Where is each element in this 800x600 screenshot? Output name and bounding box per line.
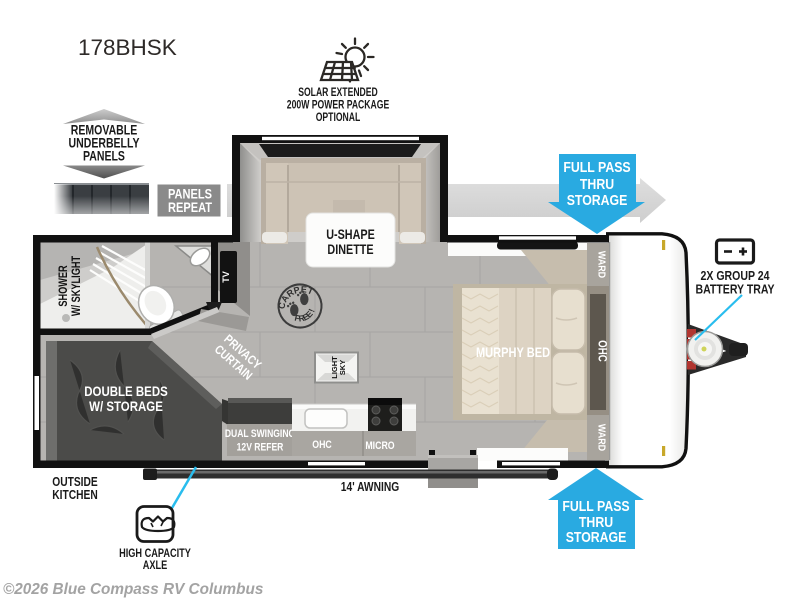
svg-text:OHC: OHC bbox=[595, 340, 608, 362]
svg-text:FULL PASS: FULL PASS bbox=[562, 498, 629, 514]
svg-text:THRU: THRU bbox=[580, 176, 614, 192]
svg-text:STORAGE: STORAGE bbox=[566, 529, 627, 545]
svg-text:REPEAT: REPEAT bbox=[168, 200, 212, 215]
svg-text:W/ STORAGE: W/ STORAGE bbox=[89, 398, 163, 414]
svg-text:OPTIONAL: OPTIONAL bbox=[316, 112, 361, 125]
svg-text:HIGH CAPACITY: HIGH CAPACITY bbox=[119, 548, 191, 560]
svg-text:SHOWER: SHOWER bbox=[58, 265, 70, 307]
svg-text:U-SHAPE: U-SHAPE bbox=[326, 227, 375, 242]
svg-text:W/ SKYLIGHT: W/ SKYLIGHT bbox=[71, 255, 83, 316]
svg-text:WARD: WARD bbox=[595, 424, 607, 451]
svg-text:OHC: OHC bbox=[312, 439, 332, 451]
svg-text:©2026 Blue Compass RV Columbus: ©2026 Blue Compass RV Columbus bbox=[3, 581, 263, 598]
svg-text:178BHSK: 178BHSK bbox=[78, 35, 177, 60]
svg-text:WARD: WARD bbox=[595, 251, 607, 278]
svg-text:FULL PASS: FULL PASS bbox=[563, 159, 630, 175]
svg-text:KITCHEN: KITCHEN bbox=[52, 489, 98, 502]
svg-text:SOLAR EXTENDED: SOLAR EXTENDED bbox=[298, 87, 378, 100]
svg-text:OUTSIDE: OUTSIDE bbox=[52, 476, 98, 489]
svg-text:TV: TV bbox=[221, 271, 231, 283]
svg-text:THRU: THRU bbox=[579, 514, 613, 530]
svg-text:STORAGE: STORAGE bbox=[567, 192, 628, 208]
svg-text:MICRO: MICRO bbox=[365, 440, 395, 452]
svg-text:AXLE: AXLE bbox=[143, 560, 168, 572]
svg-text:14' AWNING: 14' AWNING bbox=[341, 481, 400, 494]
svg-text:DUAL SWINGING: DUAL SWINGING bbox=[225, 428, 296, 440]
svg-text:MURPHY BED: MURPHY BED bbox=[476, 345, 550, 360]
svg-text:BATTERY TRAY: BATTERY TRAY bbox=[695, 281, 774, 296]
svg-text:DINETTE: DINETTE bbox=[327, 242, 373, 257]
svg-text:PANELS: PANELS bbox=[83, 148, 125, 164]
svg-text:12V REFER: 12V REFER bbox=[237, 442, 284, 454]
svg-text:DOUBLE BEDS: DOUBLE BEDS bbox=[84, 383, 168, 399]
svg-text:200W POWER PACKAGE: 200W POWER PACKAGE bbox=[287, 99, 389, 112]
